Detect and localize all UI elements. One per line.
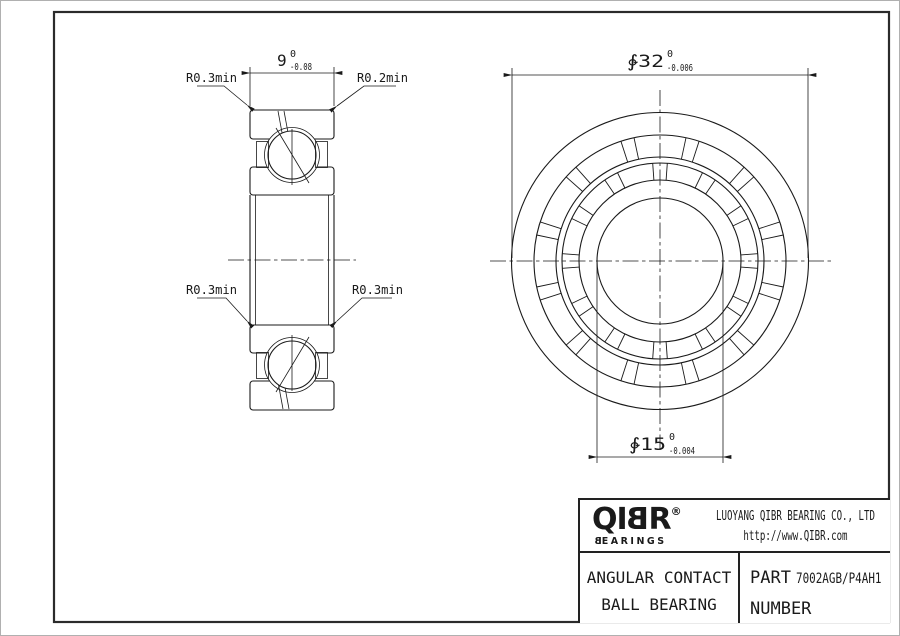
- company-info: LUOYANG QIBR BEARING CO., LTD http://www…: [682, 505, 900, 547]
- bridge-line: [621, 141, 628, 162]
- company-name: LUOYANG QIBR BEARING CO., LTD: [716, 507, 875, 527]
- bridge-line: [762, 282, 784, 287]
- radius-label-top-left: R0.3min: [186, 70, 237, 85]
- logo-subtitle-text: EARINGS: [602, 536, 667, 547]
- cross-section-view: 9 0 -0.08 R0.3min R0.2min R0.3min R0.3mi…: [186, 49, 408, 410]
- width-dim-tol-upper: 0: [290, 49, 296, 60]
- bridge-line: [566, 177, 582, 192]
- bridge-line: [681, 138, 686, 160]
- bridge-line: [621, 360, 628, 381]
- bridge-line: [572, 296, 587, 303]
- bridge-line: [666, 342, 667, 359]
- bridge-line: [737, 177, 753, 192]
- bridge-line: [681, 363, 686, 385]
- bridge-line: [692, 360, 699, 381]
- od-dim-tol-upper: 0: [667, 49, 673, 60]
- part-number-cell: PART NUMBER 7002AGB/P4AH1: [740, 553, 890, 623]
- logo-subtitle: BEARINGS: [592, 537, 682, 547]
- radius-label-bottom-left: R0.3min: [186, 282, 237, 297]
- bridge-line: [634, 363, 639, 385]
- bridge-line: [634, 138, 639, 160]
- logo-wordmark: QIBR®: [592, 505, 682, 535]
- lower-half-section: [250, 325, 334, 410]
- bridge-line: [540, 293, 561, 300]
- bridge-line: [576, 167, 591, 183]
- width-dim-tol-lower: -0.08: [290, 62, 312, 73]
- bridge-line: [537, 282, 559, 287]
- bridge-line: [579, 206, 593, 216]
- logo-subtitle-mirrored-b: B: [592, 537, 602, 547]
- drawing-sheet: 9 0 -0.08 R0.3min R0.2min R0.3min R0.3mi…: [0, 0, 900, 636]
- registered-trademark-symbol: ®: [671, 505, 682, 518]
- bridge-line: [741, 254, 758, 255]
- bridge-line: [540, 222, 561, 229]
- front-view: ∲32 0 -0.006 ∲15 0 -0.004: [490, 49, 833, 463]
- title-block: QIBR® BEARINGS LUOYANG QIBR BEARING CO.,…: [578, 498, 890, 623]
- logo-text: R: [649, 502, 671, 537]
- radius-label-bottom-right: R0.3min: [352, 282, 403, 297]
- logo-text: QI: [592, 502, 627, 537]
- bridge-line: [737, 331, 753, 346]
- bridge-line: [618, 334, 625, 349]
- bridge-line: [653, 163, 654, 180]
- bridge-line: [706, 328, 716, 342]
- width-dimension: 9 0 -0.08: [250, 49, 334, 106]
- bridge-line: [706, 180, 716, 194]
- part-number-value: 7002AGB/P4AH1: [796, 571, 881, 587]
- bridge-line: [733, 219, 748, 226]
- bridge-line: [618, 173, 625, 188]
- bridge-line: [759, 293, 780, 300]
- bridge-line: [695, 334, 702, 349]
- od-dim-tol-lower: -0.006: [667, 63, 693, 74]
- bridge-line: [762, 235, 784, 240]
- bore-dim-tol-lower: -0.004: [669, 446, 695, 457]
- bridge-line: [741, 267, 758, 268]
- bridge-line: [566, 331, 582, 346]
- title-block-detail-row: ANGULAR CONTACT BALL BEARING PART NUMBER…: [580, 553, 890, 623]
- company-logo: QIBR® BEARINGS: [580, 505, 682, 547]
- title-block-header-row: QIBR® BEARINGS LUOYANG QIBR BEARING CO.,…: [580, 500, 890, 553]
- part-label-line2: NUMBER: [750, 594, 811, 625]
- product-name-line1: ANGULAR CONTACT: [580, 564, 738, 591]
- bridge-line: [579, 307, 593, 317]
- bridge-line: [692, 141, 699, 162]
- bridge-line: [759, 222, 780, 229]
- bridge-line: [733, 296, 748, 303]
- bridge-line: [695, 173, 702, 188]
- bridge-line: [572, 219, 587, 226]
- bridge-line: [727, 307, 741, 317]
- bridge-line: [537, 235, 559, 240]
- radius-label-top-right: R0.2min: [357, 70, 408, 85]
- bridge-line: [730, 167, 745, 183]
- bridge-line: [605, 328, 615, 342]
- bridge-line: [605, 180, 615, 194]
- bore-dim-tol-upper: 0: [669, 432, 675, 443]
- bore-dim-value: ∲15: [629, 435, 666, 455]
- bridge-line: [727, 206, 741, 216]
- upper-half-section: [250, 110, 334, 195]
- width-dim-value: 9: [277, 51, 287, 70]
- bridge-line: [666, 163, 667, 180]
- bridge-line: [562, 254, 579, 255]
- bridge-line: [562, 267, 579, 268]
- bridge-line: [653, 342, 654, 359]
- product-name-cell: ANGULAR CONTACT BALL BEARING: [580, 553, 740, 623]
- od-dim-value: ∲32: [627, 52, 664, 72]
- product-name-line2: BALL BEARING: [580, 591, 738, 618]
- company-website: http://www.QIBR.com: [716, 527, 875, 547]
- bridge-line: [730, 338, 745, 354]
- logo-mirrored-b: B: [627, 505, 649, 535]
- bridge-line: [576, 338, 591, 354]
